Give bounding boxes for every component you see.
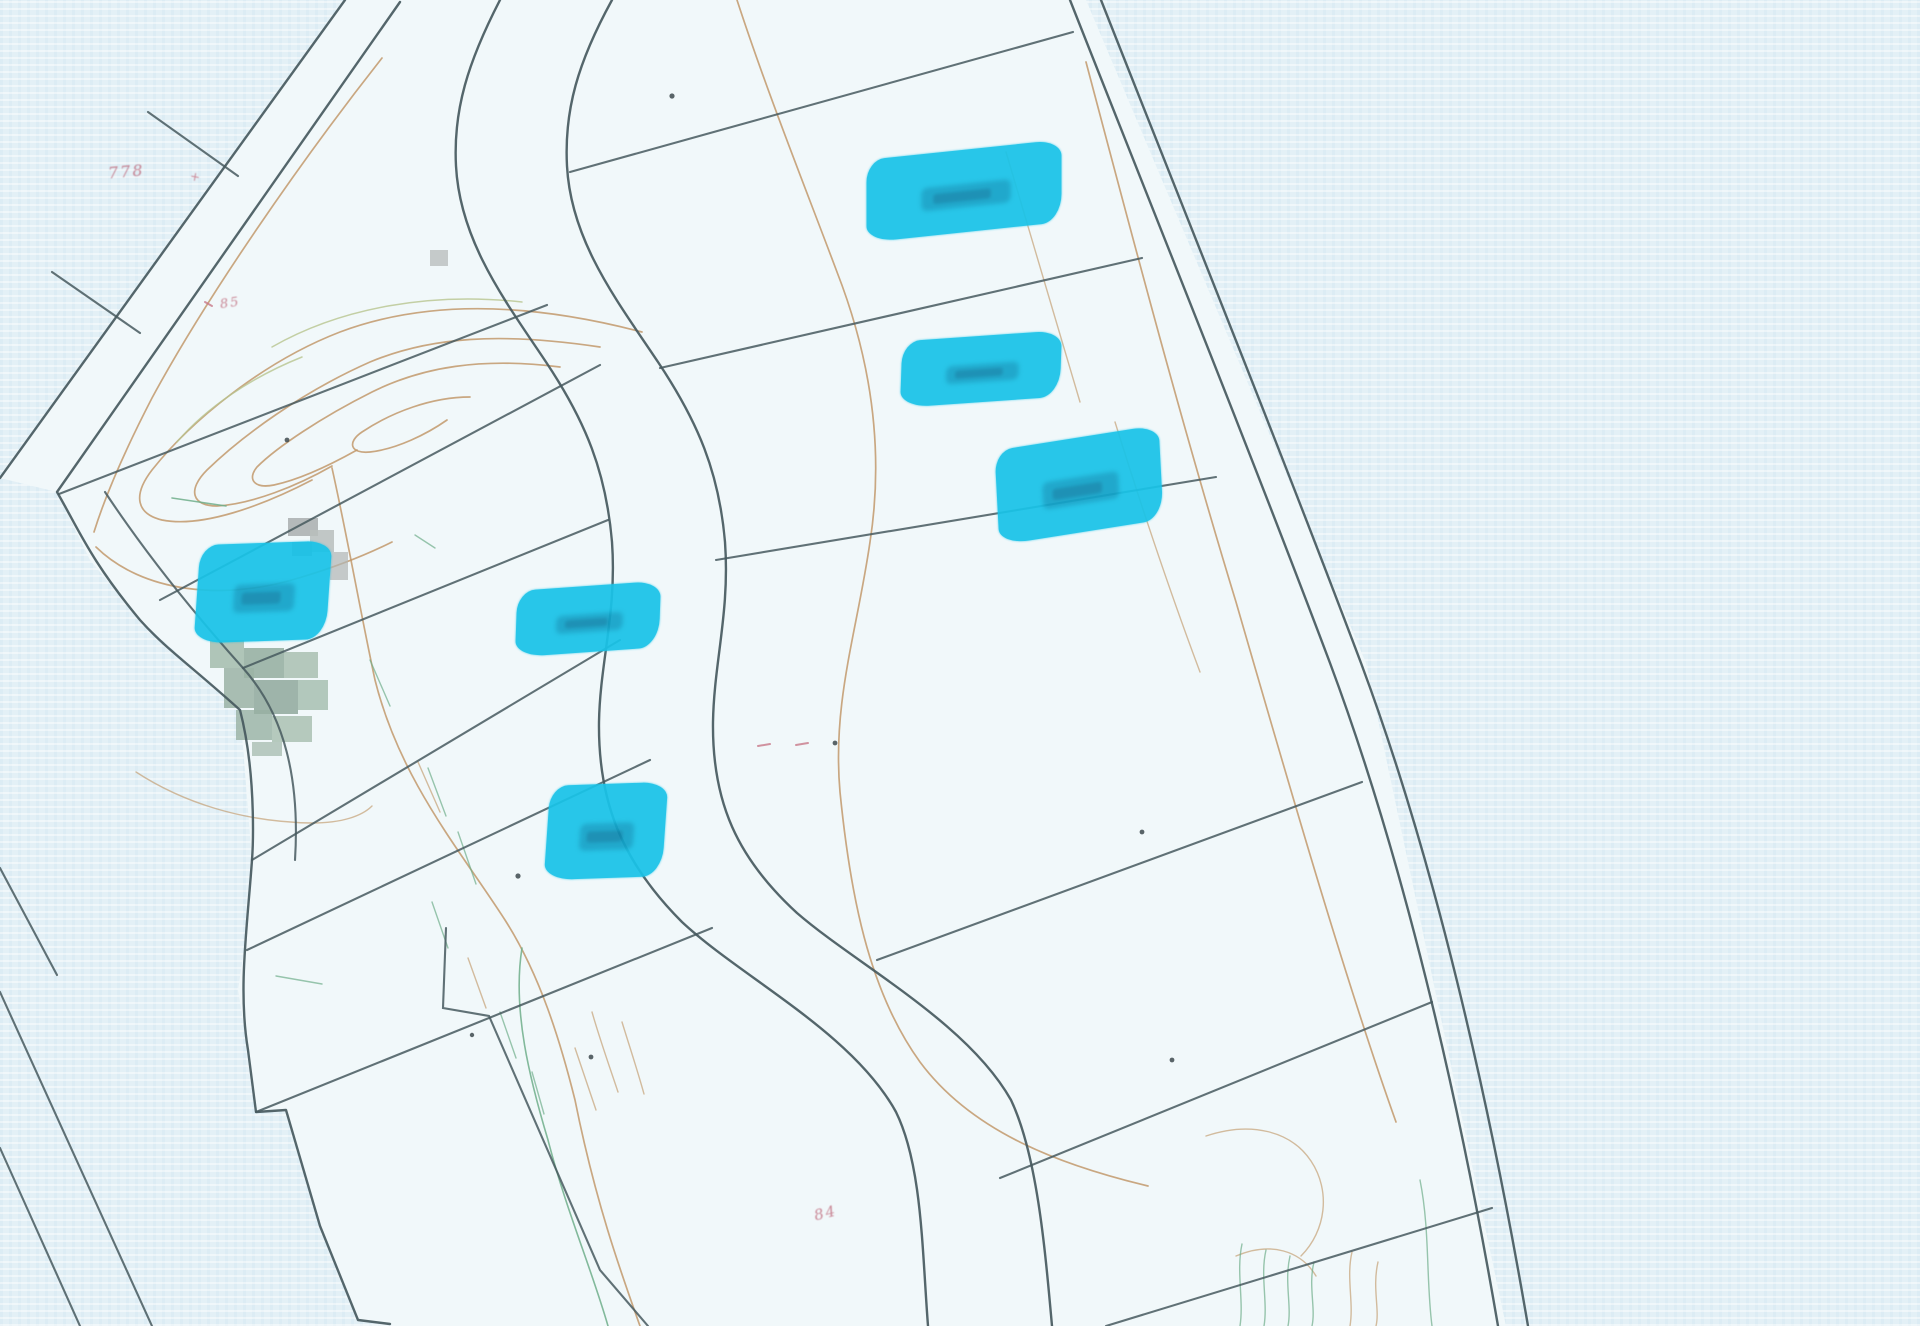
parcel-highlight-2 [900,330,1062,407]
map-label-red-3: 84 [812,1201,839,1224]
parcel-highlight-5 [515,581,661,657]
annotation-overlay: 778+8584 [0,0,1920,1326]
parcel-highlight-4 [194,541,333,644]
parcel-highlight-6 [544,782,669,880]
map-canvas: 778+8584 [0,0,1920,1326]
map-label-red-0: 778 [107,160,145,182]
parcel-highlight-3 [995,425,1164,545]
map-label-red-1: + [189,169,203,185]
parcel-highlight-1 [867,140,1062,243]
map-label-red-2: 85 [219,295,241,313]
